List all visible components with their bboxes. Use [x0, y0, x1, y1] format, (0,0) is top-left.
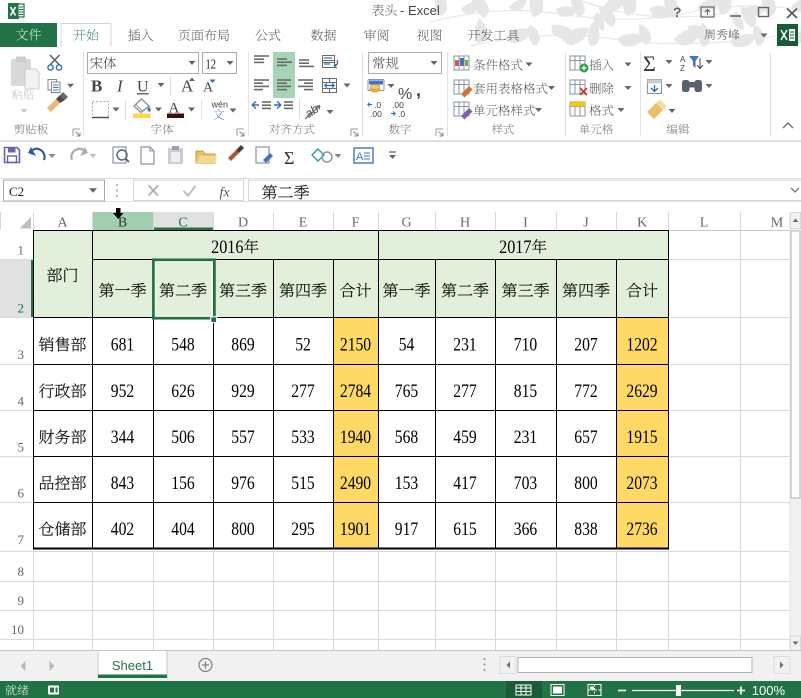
svg-text:765: 765 [395, 381, 418, 402]
svg-text:5: 5 [18, 440, 25, 455]
svg-text:2016: 2016 [211, 238, 243, 258]
svg-text:772: 772 [574, 381, 597, 402]
svg-text:800: 800 [231, 519, 254, 540]
svg-text:843: 843 [111, 473, 134, 494]
svg-text:2490: 2490 [340, 473, 371, 494]
svg-text:fx: fx [220, 186, 231, 201]
svg-text:2736: 2736 [626, 519, 657, 540]
svg-text:?: ? [673, 4, 682, 20]
svg-text:557: 557 [231, 427, 254, 448]
svg-text:277: 277 [453, 381, 476, 402]
svg-text:9: 9 [18, 593, 25, 608]
svg-text:402: 402 [111, 519, 134, 540]
svg-text:B: B [91, 77, 102, 96]
svg-text:8: 8 [18, 564, 25, 579]
svg-text:568: 568 [395, 427, 418, 448]
svg-text:626: 626 [171, 381, 194, 402]
svg-text:E: E [299, 216, 308, 231]
svg-text:,: , [416, 80, 421, 100]
svg-text:M: M [771, 216, 784, 231]
svg-text:231: 231 [453, 335, 476, 356]
svg-text:1901: 1901 [340, 519, 371, 540]
svg-text:515: 515 [291, 473, 314, 494]
svg-text:3: 3 [18, 347, 25, 362]
svg-text:2150: 2150 [340, 335, 371, 356]
svg-text:52: 52 [295, 335, 311, 356]
svg-text:533: 533 [291, 427, 314, 448]
svg-text:A: A [356, 151, 364, 163]
svg-text:100%: 100% [752, 683, 786, 698]
svg-text:- Excel: - Excel [400, 3, 440, 18]
svg-text:F: F [352, 216, 360, 231]
svg-text:2629: 2629 [626, 381, 657, 402]
svg-text:404: 404 [171, 519, 195, 540]
svg-text:G: G [401, 216, 411, 231]
svg-text:1915: 1915 [626, 427, 657, 448]
svg-text:2: 2 [18, 301, 25, 316]
svg-text:2784: 2784 [340, 381, 372, 402]
svg-text:417: 417 [453, 473, 476, 494]
svg-text:Z: Z [680, 64, 685, 73]
svg-text:4: 4 [18, 393, 25, 408]
svg-text:710: 710 [514, 335, 537, 356]
svg-text:7: 7 [18, 532, 25, 547]
svg-text:800: 800 [574, 473, 597, 494]
svg-text:C: C [178, 216, 187, 231]
svg-text:C2: C2 [9, 184, 24, 199]
svg-text:K: K [637, 216, 647, 231]
svg-text:I: I [523, 216, 528, 231]
svg-text:2073: 2073 [626, 473, 657, 494]
svg-text:657: 657 [574, 427, 597, 448]
svg-text:917: 917 [395, 519, 418, 540]
svg-text:295: 295 [291, 519, 314, 540]
svg-text:H: H [460, 216, 470, 231]
svg-text:952: 952 [111, 381, 134, 402]
svg-text:681: 681 [111, 335, 134, 356]
svg-text:Σ: Σ [284, 148, 294, 168]
svg-text:U: U [137, 79, 149, 96]
svg-text:929: 929 [231, 381, 254, 402]
svg-text:L: L [700, 216, 709, 231]
svg-text:506: 506 [171, 427, 194, 448]
svg-text:D: D [238, 216, 248, 231]
svg-text:12: 12 [206, 58, 217, 73]
svg-text:344: 344 [111, 427, 135, 448]
svg-text:A: A [57, 216, 68, 231]
svg-text:10: 10 [11, 622, 24, 637]
svg-text:207: 207 [574, 335, 597, 356]
svg-text:6: 6 [18, 486, 25, 501]
svg-text:548: 548 [171, 335, 194, 356]
svg-text:1202: 1202 [626, 335, 657, 356]
svg-text:277: 277 [291, 381, 314, 402]
svg-text:459: 459 [453, 427, 476, 448]
svg-text:976: 976 [231, 473, 254, 494]
svg-text:153: 153 [395, 473, 418, 494]
svg-text:A: A [680, 55, 686, 64]
svg-text:wén: wén [211, 100, 229, 110]
svg-text:838: 838 [574, 519, 597, 540]
svg-text:869: 869 [231, 335, 254, 356]
svg-text:366: 366 [514, 519, 537, 540]
svg-text:1: 1 [18, 243, 25, 258]
svg-text:815: 815 [514, 381, 537, 402]
svg-text:231: 231 [514, 427, 537, 448]
svg-text:615: 615 [453, 519, 476, 540]
svg-text:54: 54 [399, 335, 415, 356]
svg-text:156: 156 [171, 473, 194, 494]
svg-text:Sheet1: Sheet1 [112, 658, 153, 673]
svg-text:Σ: Σ [643, 51, 656, 76]
svg-text:J: J [583, 216, 589, 231]
svg-text:1940: 1940 [340, 427, 371, 448]
svg-text:.0: .0 [398, 109, 405, 119]
svg-text:2017: 2017 [499, 238, 531, 258]
svg-text:703: 703 [514, 473, 537, 494]
svg-text:.00: .00 [370, 109, 382, 119]
